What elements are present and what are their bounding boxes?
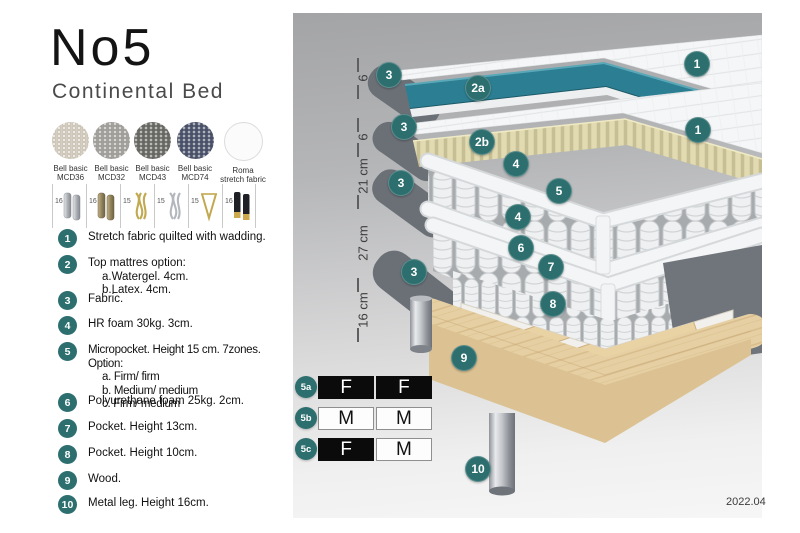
callout-badge-8: 8 [540, 291, 566, 317]
product-sheet: No5 Continental Bed Bell basicMCD36 Bell… [0, 0, 800, 533]
fabric-swatch-icon [177, 122, 214, 159]
ruler-tick [357, 58, 359, 72]
leg-option-cylinder-bronze: 16 [86, 184, 120, 228]
list-item-text: Pocket. Height 10cm. [88, 447, 197, 461]
list-item: 6 Polyurethane foam 25kg. 2cm. [58, 395, 290, 412]
firmness-row-badge-5c: 5c [295, 438, 317, 460]
ruler-tick [357, 118, 359, 132]
ruler-tick [357, 328, 359, 342]
list-subitem: a.Watergel. 4cm. [102, 271, 189, 285]
list-number-badge: 4 [58, 316, 77, 335]
list-item-text: Wood. [88, 473, 121, 487]
ruler-label: 6 [356, 74, 371, 81]
swatch-label: Bell basic [53, 164, 87, 173]
firmness-row-5a: F F [318, 376, 432, 399]
callout-badge-1: 1 [685, 117, 711, 143]
leg-count: 15 [123, 198, 131, 205]
page-subtitle: Continental Bed [52, 80, 224, 104]
list-number-badge: 9 [58, 471, 77, 490]
edition-date: 2022.04 [726, 496, 766, 508]
leg-count: 15 [191, 198, 199, 205]
list-item: 10 Metal leg. Height 16cm. [58, 497, 290, 514]
list-item-text: Polyurethane foam 25kg. 2cm. [88, 395, 244, 409]
firmness-row-5b: M M [318, 407, 432, 430]
list-number-badge: 2 [58, 255, 77, 274]
fabric-swatch-icon [93, 122, 130, 159]
leg-option-twist-silver: 15 [154, 184, 188, 228]
metal-leg-right [489, 413, 515, 496]
callout-badge-2a: 2a [465, 75, 491, 101]
list-subitem: a. Firm/ firm [102, 371, 290, 385]
list-item-text: Fabric. [88, 293, 123, 307]
callout-badge-4: 4 [505, 204, 531, 230]
list-item-text: Metal leg. Height 16cm. [88, 497, 209, 511]
list-item: 7 Pocket. Height 13cm. [58, 421, 290, 438]
swatch-label: Bell basic [135, 164, 169, 173]
leg-options: 16 16 15 15 [52, 184, 256, 228]
list-item: 3 Fabric. [58, 293, 290, 310]
list-number-badge: 6 [58, 393, 77, 412]
leg-twist-gold-icon [129, 190, 153, 222]
list-item: 2 Top mattres option: a.Watergel. 4cm. b… [58, 257, 290, 298]
fabric-swatch: Bell basicMCD32 [91, 122, 132, 184]
leg-count: 15 [157, 198, 165, 205]
callout-badge-4: 4 [503, 151, 529, 177]
fabric-swatch: Bell basicMCD74 [173, 122, 217, 184]
ruler-label: 6 [356, 133, 371, 140]
fabric-swatch-icon [224, 122, 263, 161]
firmness-cell: M [318, 407, 374, 430]
list-number-badge: 1 [58, 229, 77, 248]
list-item: 8 Pocket. Height 10cm. [58, 447, 290, 464]
callout-badge-10: 10 [465, 456, 491, 482]
callout-badge-5: 5 [546, 178, 572, 204]
metal-leg-front [410, 296, 432, 354]
list-item-text: Stretch fabric quilted with wadding. [88, 231, 266, 245]
leg-hairpin-gold-icon [197, 190, 221, 222]
ruler-label: 21 cm [356, 158, 371, 193]
callout-badge-3: 3 [391, 114, 417, 140]
ruler-tick [357, 143, 359, 157]
page-title: No5 [50, 18, 154, 78]
firmness-cell: M [376, 407, 432, 430]
leg-option-cylinder-black-gold: 16 [222, 184, 256, 228]
list-number-badge: 8 [58, 445, 77, 464]
swatch-label: Bell basic [178, 164, 212, 173]
firmness-cell: M [376, 438, 432, 461]
leg-count: 16 [55, 198, 63, 205]
leg-option-cylinder-silver: 16 [52, 184, 86, 228]
list-item-text: Top mattres option: a.Watergel. 4cm. b.L… [88, 257, 189, 298]
callout-badge-2b: 2b [469, 129, 495, 155]
fabric-swatch-icon [52, 122, 89, 159]
ruler-tick [357, 278, 359, 292]
firmness-cell: F [318, 438, 374, 461]
firmness-cell: F [318, 376, 374, 399]
callout-badge-3: 3 [376, 62, 402, 88]
list-number-badge: 7 [58, 419, 77, 438]
list-item: 9 Wood. [58, 473, 290, 490]
leg-option-twist-gold: 15 [120, 184, 154, 228]
list-number-badge: 5 [58, 342, 77, 361]
callout-badge-3: 3 [401, 259, 427, 285]
ruler-label: 27 cm [356, 225, 371, 260]
callout-badge-3: 3 [388, 170, 414, 196]
leg-count: 16 [225, 198, 233, 205]
fabric-swatch-icon [134, 122, 171, 159]
list-item: 1 Stretch fabric quilted with wadding. [58, 231, 290, 248]
leg-cylinder-silver-icon [61, 190, 85, 222]
firmness-row-badge-5a: 5a [295, 376, 317, 398]
list-item-text: Pocket. Height 13cm. [88, 421, 197, 435]
list-number-badge: 3 [58, 291, 77, 310]
ruler-tick [357, 195, 359, 209]
callout-badge-7: 7 [538, 254, 564, 280]
leg-cylinder-black-gold-icon [230, 190, 254, 222]
callout-badge-9: 9 [451, 345, 477, 371]
leg-option-hairpin-gold: 15 [188, 184, 222, 228]
list-item-text: HR foam 30kg. 3cm. [88, 318, 193, 332]
swatch-label: Bell basic [94, 164, 128, 173]
fabric-swatch: Romastretch fabric [217, 122, 269, 184]
ruler-tick [357, 85, 359, 99]
leg-twist-silver-icon [163, 190, 187, 222]
leg-count: 16 [89, 198, 97, 205]
exploded-view-panel: 6 6 21 cm 27 cm 16 cm 1 3 2a 3 1 2b 4 3 … [293, 13, 762, 518]
firmness-cell: F [376, 376, 432, 399]
fabric-swatch: Bell basicMCD36 [50, 122, 91, 184]
callout-badge-1: 1 [684, 51, 710, 77]
callout-badge-6: 6 [508, 235, 534, 261]
fabric-swatches: Bell basicMCD36 Bell basicMCD32 Bell bas… [50, 122, 269, 184]
firmness-row-5c: F M [318, 438, 432, 461]
ruler-label: 16 cm [356, 292, 371, 327]
list-number-badge: 10 [58, 495, 77, 514]
list-item: 4 HR foam 30kg. 3cm. [58, 318, 290, 335]
firmness-row-badge-5b: 5b [295, 407, 317, 429]
swatch-label: Roma [232, 166, 253, 175]
fabric-swatch: Bell basicMCD43 [132, 122, 173, 184]
leg-cylinder-bronze-icon [95, 190, 119, 222]
